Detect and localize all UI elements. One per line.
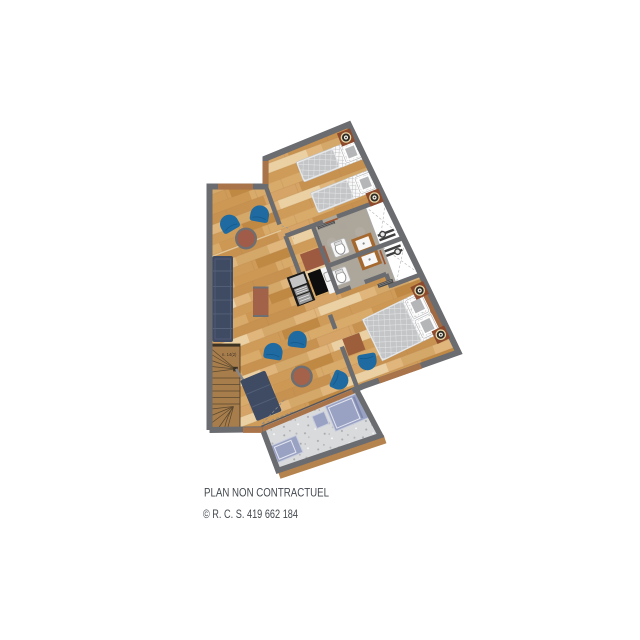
svg-text:© R. C. S. 419 662 184: © R. C. S. 419 662 184	[203, 507, 298, 521]
svg-text:PLAN NON CONTRACTUEL: PLAN NON CONTRACTUEL	[204, 487, 329, 500]
svg-text:n. 14(2): n. 14(2)	[222, 352, 237, 357]
